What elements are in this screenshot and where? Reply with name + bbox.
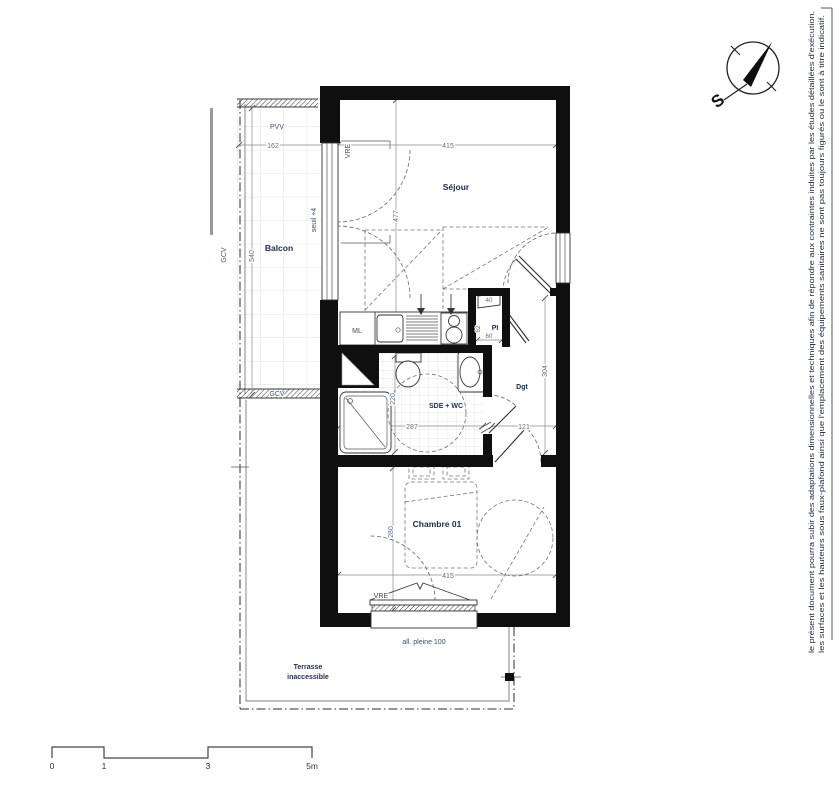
window-sejour-right bbox=[556, 233, 570, 283]
entrance-door-leaf bbox=[516, 259, 550, 293]
code-vre-sejour: VRE bbox=[345, 143, 352, 158]
section-marker bbox=[210, 108, 213, 235]
dim-162: 162 bbox=[267, 143, 279, 150]
code-gcv-left: GCV bbox=[221, 247, 228, 263]
label-ml: ML bbox=[352, 328, 362, 335]
window-bedroom-sill bbox=[371, 611, 477, 628]
room-label-chambre: Chambre 01 bbox=[413, 519, 462, 529]
dim-287: 287 bbox=[406, 424, 418, 431]
dim-477: 477 bbox=[393, 210, 400, 222]
bedroom-window-swing bbox=[370, 536, 435, 601]
dim-280: 280 bbox=[388, 526, 395, 538]
room-label-balcon: Balcon bbox=[265, 243, 293, 253]
scale-bar: 0 1 3 5m bbox=[50, 747, 318, 771]
dim-62: 62 bbox=[475, 325, 482, 332]
scale-0: 0 bbox=[50, 761, 55, 771]
compass: S bbox=[707, 42, 779, 112]
dim-415-top: 415 bbox=[442, 143, 454, 150]
kitchen-stove bbox=[441, 313, 467, 344]
dim-415-bottom: 415 bbox=[442, 573, 454, 580]
floor-plan-drawing: Balcon Séjour Chambre 01 SDE + WC Dgt PI… bbox=[0, 0, 839, 800]
dim-60: 60 bbox=[486, 333, 493, 340]
sde-door-leaf bbox=[489, 406, 516, 433]
washbasin-cabinet bbox=[458, 352, 485, 392]
compass-south-label: S bbox=[707, 90, 728, 112]
label-terrasse-1: Terrasse bbox=[294, 664, 323, 671]
sde-door-swing bbox=[488, 395, 516, 406]
dim-220: 220 bbox=[390, 393, 397, 405]
label-terrasse-2: inaccessible bbox=[287, 674, 329, 681]
dim-540: 540 bbox=[249, 250, 256, 262]
code-gcv-bottom: GCV bbox=[269, 391, 285, 398]
window-bedroom-frame bbox=[370, 600, 477, 605]
dim-121: 121 bbox=[518, 424, 530, 431]
disclaimer-line-2: les surfaces et les hauteurs sous faux-p… bbox=[817, 15, 826, 653]
scale-3: 3 bbox=[206, 761, 211, 771]
room-label-sde: SDE + WC bbox=[429, 403, 463, 410]
dim-304: 304 bbox=[542, 365, 549, 377]
label-seuil: seuil +4 bbox=[311, 208, 318, 232]
kitchen bbox=[340, 294, 470, 345]
room-label-pi: PI bbox=[492, 325, 499, 332]
label-allege: all. pleine 100 bbox=[402, 639, 445, 646]
wc-bowl bbox=[396, 361, 420, 387]
scale-1: 1 bbox=[102, 761, 107, 771]
scale-5m: 5m bbox=[306, 761, 318, 771]
bedroom-door-leaf bbox=[495, 428, 526, 462]
window-swing-arc-bottom bbox=[338, 226, 410, 298]
window-sejour-left bbox=[322, 143, 338, 300]
window-bedroom-hatch bbox=[372, 605, 475, 611]
sejour-room bbox=[338, 141, 558, 311]
entrance-door-swing bbox=[503, 258, 517, 292]
bedroom-door-swing bbox=[526, 428, 541, 462]
code-pvv: PVV bbox=[270, 124, 284, 131]
code-vre-chambre: VRE bbox=[374, 593, 389, 600]
room-label-sejour: Séjour bbox=[443, 182, 470, 192]
compass-needle bbox=[743, 42, 772, 87]
disclaimer-line-1: le présent document pourra subir des ada… bbox=[807, 11, 816, 653]
room-label-dgt: Dgt bbox=[516, 384, 528, 391]
terrace-post bbox=[505, 673, 514, 681]
dim-40: 40 bbox=[486, 297, 493, 304]
floor-plan-page: Balcon Séjour Chambre 01 SDE + WC Dgt PI… bbox=[0, 0, 839, 800]
railing-top bbox=[237, 99, 318, 107]
scale-bar-line bbox=[52, 747, 312, 758]
disclaimer: le présent document pourra subir des ada… bbox=[807, 8, 832, 653]
